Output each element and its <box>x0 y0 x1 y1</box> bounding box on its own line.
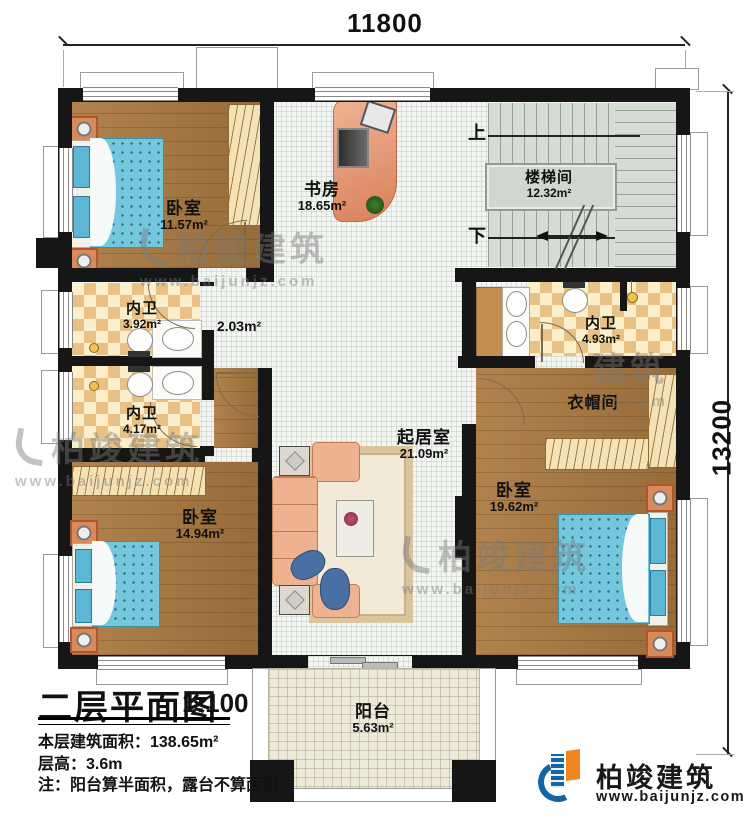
room-area: 5.63m² <box>352 721 393 736</box>
room-name: 书房 <box>298 180 346 199</box>
watermark-url: www.baijunjz.com <box>15 473 203 490</box>
fixture-knob <box>89 381 99 391</box>
wardrobe <box>228 104 262 226</box>
room-name: 卧室 <box>490 481 538 500</box>
hallway-area-label: 2.03m² <box>217 319 261 335</box>
extension-line <box>696 91 734 92</box>
nightstand <box>70 627 98 653</box>
room-area: 14.94m² <box>176 527 224 542</box>
arrow-right-icon <box>596 231 608 241</box>
door-leaf <box>541 324 543 362</box>
watermark-text: 柏竣建筑 <box>438 530 590 579</box>
toilet <box>127 328 153 353</box>
watermark-text: 建筑 <box>592 342 668 391</box>
room-area: 19.62m² <box>490 500 538 515</box>
interior-wall-stub <box>620 281 627 311</box>
fixture-knob <box>89 343 99 353</box>
stair-up-label: 上 <box>468 123 486 143</box>
top-bay-projection <box>196 47 278 91</box>
room-name: 起居室 <box>397 428 451 447</box>
room-name: 卧室 <box>176 508 224 527</box>
room-area: 2.03m² <box>217 319 261 335</box>
logo-building-blue <box>551 754 564 788</box>
plant <box>366 196 384 214</box>
bed-cushion <box>75 589 92 623</box>
note-line: 注：阳台算半面积，露台不算面积 <box>38 771 278 795</box>
room-area: 3.92m² <box>123 318 161 331</box>
sliding-door-panel <box>330 657 366 664</box>
end-table <box>279 446 310 476</box>
bed-cushion <box>650 570 666 616</box>
watermark-url: z.com <box>592 393 668 410</box>
interior-wall <box>455 268 676 282</box>
window-frame <box>690 132 708 236</box>
top-dimension-line <box>63 44 685 46</box>
brand-url: www.baijunjz.com <box>596 789 745 805</box>
window-frame <box>516 669 642 685</box>
stair-direction-line <box>548 235 598 237</box>
brand-logo-icon <box>538 748 590 804</box>
room-name: 内卫 <box>123 301 161 318</box>
window <box>677 500 691 642</box>
bed-cushion <box>73 196 90 238</box>
window <box>518 656 638 670</box>
room-name: 内卫 <box>123 406 161 423</box>
window <box>677 135 691 232</box>
top-dimension-label: 11800 <box>347 8 423 39</box>
interior-wall <box>462 281 476 361</box>
window-frame <box>690 286 708 354</box>
stair-down-label: 下 <box>468 226 486 246</box>
room-label-balcony: 阳台 5.63m² <box>352 702 393 736</box>
window <box>59 148 73 232</box>
balcony-pillar <box>452 760 496 802</box>
bed-cushion <box>73 146 90 188</box>
person <box>320 568 350 610</box>
window <box>677 288 691 350</box>
plan-scale: 1:100 <box>182 688 249 719</box>
computer-monitor <box>337 128 369 168</box>
room-label-bedroom-bottom-left: 卧室 14.94m² <box>176 508 224 542</box>
arrow-left-icon <box>536 231 548 241</box>
watermark: 建筑 z.com <box>592 342 668 410</box>
window-frame <box>655 68 699 90</box>
room-label-bath-left-top: 内卫 3.92m² <box>123 301 161 331</box>
bath-right-counter <box>476 287 504 360</box>
right-dimension-label: 13200 <box>707 396 738 480</box>
extension-line <box>696 754 734 755</box>
fixture-knob <box>627 292 638 303</box>
sink <box>506 321 527 347</box>
extension-line <box>63 50 64 87</box>
interior-wall <box>258 368 272 668</box>
room-label-bedroom-right: 卧室 19.62m² <box>490 481 538 515</box>
watermark: 柏竣建筑 www.baijunjz.com <box>402 530 590 598</box>
armchair <box>312 442 360 482</box>
floor-plan-page: 11800 13200 <box>0 0 750 821</box>
coffee-table <box>336 500 374 557</box>
end-table <box>279 585 310 615</box>
floor-area-line: 本层建筑面积：138.65m² <box>38 728 219 752</box>
stairs-side-flight <box>615 103 676 267</box>
stair-up-line <box>488 135 640 137</box>
nightstand <box>646 630 674 658</box>
room-area: 18.65m² <box>298 199 346 214</box>
logo-building-orange <box>566 749 580 781</box>
watermark-logo-icon <box>12 427 47 466</box>
room-name: 内卫 <box>582 316 620 333</box>
sink <box>162 327 194 351</box>
sink <box>506 291 527 317</box>
room-area: 21.09m² <box>397 447 451 462</box>
watermark-url: www.baijunjz.com <box>140 273 328 290</box>
window <box>315 87 430 101</box>
toilet <box>562 288 588 313</box>
watermark: 柏竣建筑 www.baijunjz.com <box>140 222 328 290</box>
window <box>98 656 225 670</box>
room-label-stairwell: 楼梯间 12.32m² <box>525 170 573 200</box>
window <box>83 87 178 101</box>
room-name: 楼梯间 <box>525 170 573 187</box>
watermark-url: www.baijunjz.com <box>402 581 590 598</box>
room-name: 阳台 <box>352 702 393 721</box>
room-label-study: 书房 18.65m² <box>298 180 346 214</box>
room-area: 12.32m² <box>525 187 573 200</box>
title-underline <box>38 717 230 725</box>
watermark-text: 柏竣建筑 <box>51 422 203 471</box>
interior-wall <box>200 330 214 400</box>
table-flowers <box>344 512 358 526</box>
nightstand <box>646 484 674 512</box>
bed-sheet <box>622 514 648 622</box>
watermark: 柏竣建筑 www.baijunjz.com <box>15 422 203 490</box>
window-frame <box>690 498 708 646</box>
sink <box>162 371 194 395</box>
bed-cushion <box>650 518 666 564</box>
stairs-upper-flight <box>488 103 615 163</box>
door-leaf <box>216 372 258 374</box>
toilet <box>127 372 153 397</box>
room-name: 卧室 <box>160 199 208 218</box>
window <box>59 292 73 348</box>
room-label-living-room: 起居室 21.09m² <box>397 428 451 462</box>
watermark-text: 柏竣建筑 <box>176 222 328 271</box>
watermark-logo-icon <box>399 535 434 574</box>
toilet-tank <box>128 351 150 357</box>
watermark-logo-icon <box>137 227 172 266</box>
wall <box>36 238 58 268</box>
cloakroom-closet-horizontal <box>545 438 649 470</box>
bed-cushion <box>75 549 92 583</box>
